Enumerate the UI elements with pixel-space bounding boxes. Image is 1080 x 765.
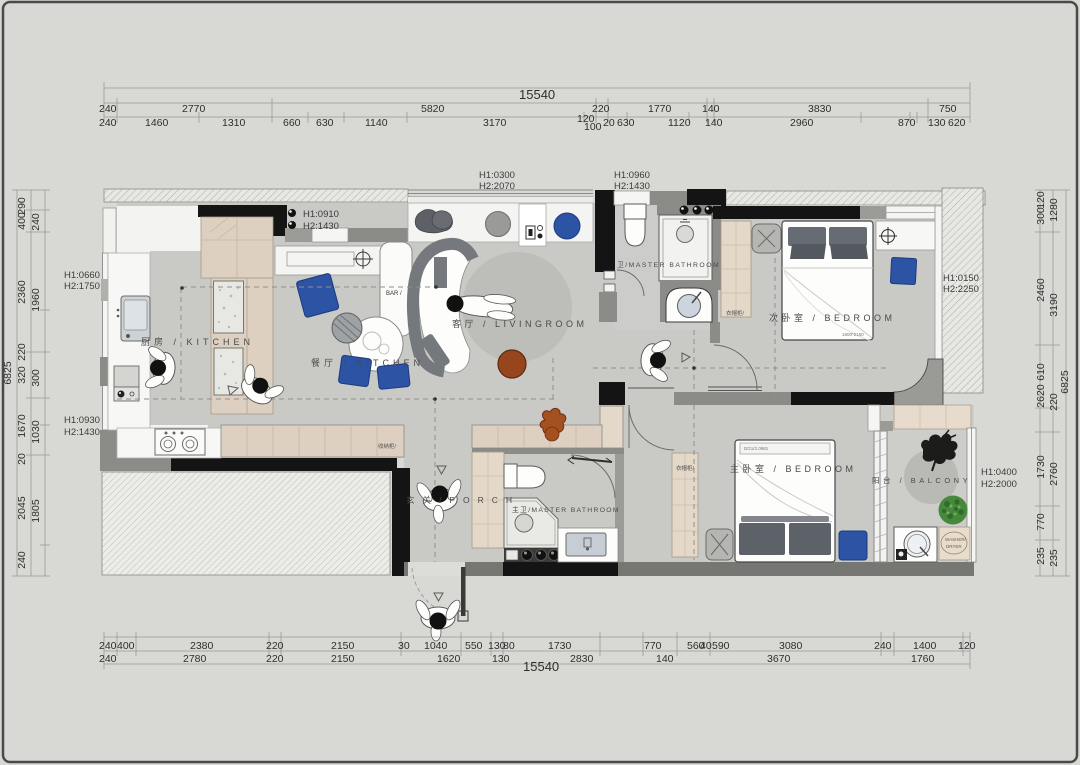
svg-text:卫/MASTER BATHROOM: 卫/MASTER BATHROOM bbox=[617, 261, 720, 269]
svg-text:630: 630 bbox=[316, 117, 334, 129]
svg-text:阳台 / BALCONY: 阳台 / BALCONY bbox=[872, 475, 971, 485]
svg-text:770: 770 bbox=[1035, 513, 1047, 531]
svg-text:H1:0400: H1:0400 bbox=[981, 467, 1017, 478]
svg-text:220: 220 bbox=[592, 103, 610, 115]
svg-text:主卫/MASTER BATHROOM: 主卫/MASTER BATHROOM bbox=[512, 505, 620, 514]
svg-text:240: 240 bbox=[99, 103, 117, 115]
svg-text:3190: 3190 bbox=[1048, 293, 1060, 317]
svg-text:30: 30 bbox=[398, 640, 410, 652]
svg-text:H2:1430: H2:1430 bbox=[64, 427, 100, 438]
svg-text:H1:0930: H1:0930 bbox=[64, 415, 100, 426]
svg-text:衣帽柜/: 衣帽柜/ bbox=[726, 309, 745, 317]
svg-text:1670: 1670 bbox=[16, 414, 28, 438]
svg-text:2150: 2150 bbox=[331, 653, 355, 665]
svg-text:3670: 3670 bbox=[767, 653, 791, 665]
svg-text:240: 240 bbox=[30, 213, 42, 231]
svg-text:620: 620 bbox=[948, 117, 966, 129]
svg-text:H1:0660: H1:0660 bbox=[64, 270, 100, 281]
svg-text:1805: 1805 bbox=[30, 499, 42, 523]
svg-text:1120: 1120 bbox=[668, 117, 691, 129]
svg-text:130: 130 bbox=[492, 653, 510, 665]
svg-text:40: 40 bbox=[700, 640, 712, 652]
svg-text:H2:1750: H2:1750 bbox=[64, 281, 100, 292]
svg-text:1460: 1460 bbox=[145, 117, 169, 129]
svg-text:240: 240 bbox=[16, 551, 28, 569]
svg-text:1310: 1310 bbox=[222, 117, 246, 129]
svg-text:240: 240 bbox=[99, 117, 117, 129]
svg-text:15540: 15540 bbox=[519, 87, 555, 102]
svg-text:220: 220 bbox=[1048, 393, 1060, 411]
svg-text:2960: 2960 bbox=[790, 117, 814, 129]
svg-text:H2:2070: H2:2070 bbox=[479, 181, 515, 192]
svg-text:610: 610 bbox=[1035, 363, 1047, 381]
svg-text:240: 240 bbox=[99, 653, 117, 665]
svg-text:6825: 6825 bbox=[1059, 370, 1071, 394]
svg-text:80: 80 bbox=[503, 640, 515, 652]
svg-text:厨房 / KITCHEN: 厨房 / KITCHEN bbox=[141, 336, 254, 347]
svg-text:320: 320 bbox=[16, 366, 28, 384]
svg-text:H1:0960: H1:0960 bbox=[614, 170, 650, 181]
svg-text:1280: 1280 bbox=[1048, 198, 1060, 222]
svg-text:220: 220 bbox=[266, 640, 284, 652]
svg-text:WASHER/: WASHER/ bbox=[945, 537, 967, 542]
svg-text:DRYER: DRYER bbox=[946, 544, 962, 549]
svg-text:1030: 1030 bbox=[30, 420, 42, 444]
svg-text:3080: 3080 bbox=[779, 640, 803, 652]
svg-text:2460: 2460 bbox=[1035, 278, 1047, 302]
svg-text:2760: 2760 bbox=[1048, 462, 1060, 486]
svg-text:3170: 3170 bbox=[483, 117, 507, 129]
svg-text:1140: 1140 bbox=[365, 117, 388, 129]
svg-text:2360: 2360 bbox=[16, 280, 28, 304]
svg-text:1620: 1620 bbox=[437, 653, 461, 665]
svg-text:H2:2250: H2:2250 bbox=[943, 284, 979, 295]
svg-text:1960: 1960 bbox=[30, 288, 42, 312]
svg-text:400: 400 bbox=[16, 212, 28, 230]
svg-text:240: 240 bbox=[874, 640, 892, 652]
svg-text:6825: 6825 bbox=[2, 361, 14, 385]
svg-text:550: 550 bbox=[465, 640, 483, 652]
svg-text:H1:0300: H1:0300 bbox=[479, 170, 515, 181]
svg-text:次卧室 / BEDROOM: 次卧室 / BEDROOM bbox=[769, 312, 896, 323]
svg-text:20: 20 bbox=[16, 453, 28, 465]
svg-text:100: 100 bbox=[584, 121, 602, 133]
svg-text:H2:1430: H2:1430 bbox=[303, 221, 339, 232]
svg-text:400: 400 bbox=[117, 640, 135, 652]
svg-text:H1:0910: H1:0910 bbox=[303, 209, 339, 220]
svg-text:220: 220 bbox=[266, 653, 284, 665]
svg-text:290: 290 bbox=[16, 197, 28, 215]
svg-text:玄关/PORCH: 玄关/PORCH bbox=[406, 495, 520, 505]
svg-text:235: 235 bbox=[1035, 547, 1047, 565]
svg-text:1770: 1770 bbox=[648, 103, 672, 115]
svg-text:870: 870 bbox=[898, 117, 916, 129]
svg-text:主卧室 / BEDROOM: 主卧室 / BEDROOM bbox=[730, 463, 857, 474]
svg-text:220: 220 bbox=[16, 343, 28, 361]
svg-text:20: 20 bbox=[603, 117, 615, 129]
svg-text:140: 140 bbox=[656, 653, 674, 665]
svg-text:2150: 2150 bbox=[331, 640, 355, 652]
svg-text:1730: 1730 bbox=[1035, 455, 1047, 479]
svg-text:2780: 2780 bbox=[183, 653, 207, 665]
svg-text:120: 120 bbox=[958, 640, 976, 652]
svg-text:300: 300 bbox=[1035, 207, 1047, 225]
svg-text:H2:2000: H2:2000 bbox=[981, 479, 1017, 490]
svg-text:15540: 15540 bbox=[523, 659, 559, 674]
svg-text:衣帽柜/: 衣帽柜/ bbox=[676, 464, 695, 472]
svg-text:140: 140 bbox=[702, 103, 720, 115]
svg-text:2830: 2830 bbox=[570, 653, 594, 665]
svg-text:餐厅 / KITCHEN: 餐厅 / KITCHEN bbox=[311, 357, 424, 368]
svg-text:235: 235 bbox=[1048, 549, 1060, 567]
svg-text:300: 300 bbox=[30, 369, 42, 387]
svg-text:770: 770 bbox=[644, 640, 662, 652]
svg-text:1760: 1760 bbox=[911, 653, 935, 665]
svg-text:2380: 2380 bbox=[190, 640, 214, 652]
svg-text:750: 750 bbox=[939, 103, 957, 115]
svg-text:1800*2150: 1800*2150 bbox=[842, 332, 864, 337]
svg-text:2045: 2045 bbox=[16, 496, 28, 520]
svg-text:1040: 1040 bbox=[424, 640, 448, 652]
svg-text:1400: 1400 bbox=[913, 640, 937, 652]
svg-text:BAR /: BAR / bbox=[386, 291, 402, 297]
svg-text:140: 140 bbox=[705, 117, 723, 129]
svg-text:3830: 3830 bbox=[808, 103, 832, 115]
svg-text:240: 240 bbox=[99, 640, 117, 652]
svg-text:2620: 2620 bbox=[1035, 384, 1047, 408]
svg-text:5820: 5820 bbox=[421, 103, 445, 115]
svg-text:客厅 / LIVINGROOM: 客厅 / LIVINGROOM bbox=[452, 318, 588, 329]
svg-text:2770: 2770 bbox=[182, 103, 206, 115]
svg-text:590: 590 bbox=[712, 640, 730, 652]
svg-text:收纳柜/: 收纳柜/ bbox=[378, 442, 397, 450]
svg-text:H1:0150: H1:0150 bbox=[943, 273, 979, 284]
svg-text:660: 660 bbox=[283, 117, 301, 129]
svg-text:630: 630 bbox=[617, 117, 635, 129]
svg-text:DG1/2.0981: DG1/2.0981 bbox=[744, 446, 769, 451]
svg-text:120: 120 bbox=[1035, 191, 1047, 209]
svg-text:130: 130 bbox=[928, 117, 946, 129]
svg-text:H2:1430: H2:1430 bbox=[614, 181, 650, 192]
svg-text:1730: 1730 bbox=[548, 640, 572, 652]
